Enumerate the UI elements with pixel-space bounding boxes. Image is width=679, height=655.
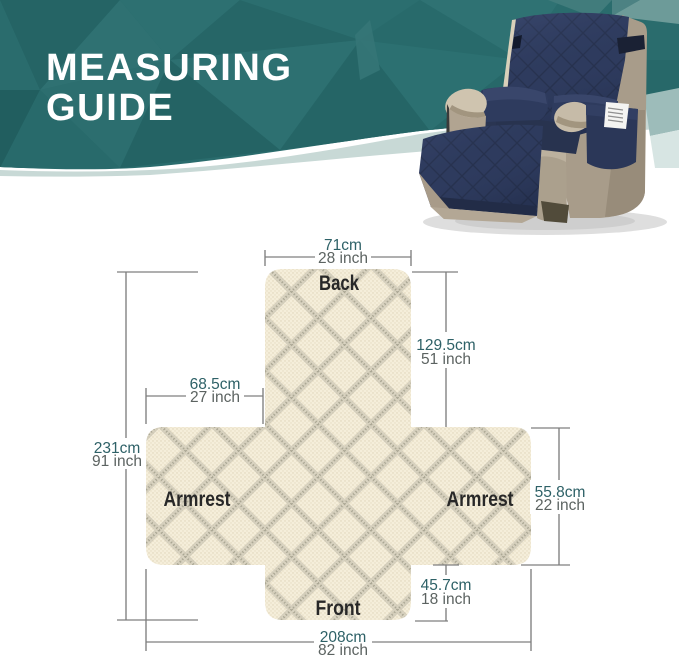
svg-text:91 inch: 91 inch [92,453,142,470]
svg-text:18 inch: 18 inch [421,591,471,608]
svg-text:Armrest: Armrest [447,488,514,511]
svg-text:28 inch: 28 inch [318,250,368,267]
svg-text:MEASURING: MEASURING [46,47,293,89]
svg-text:Back: Back [319,272,359,295]
svg-text:Front: Front [316,597,361,620]
svg-text:27 inch: 27 inch [190,389,240,406]
svg-text:22 inch: 22 inch [535,497,585,514]
svg-text:GUIDE: GUIDE [46,87,174,129]
svg-text:Armrest: Armrest [164,488,231,511]
svg-text:82 inch: 82 inch [318,642,368,655]
svg-text:51 inch: 51 inch [421,351,471,368]
